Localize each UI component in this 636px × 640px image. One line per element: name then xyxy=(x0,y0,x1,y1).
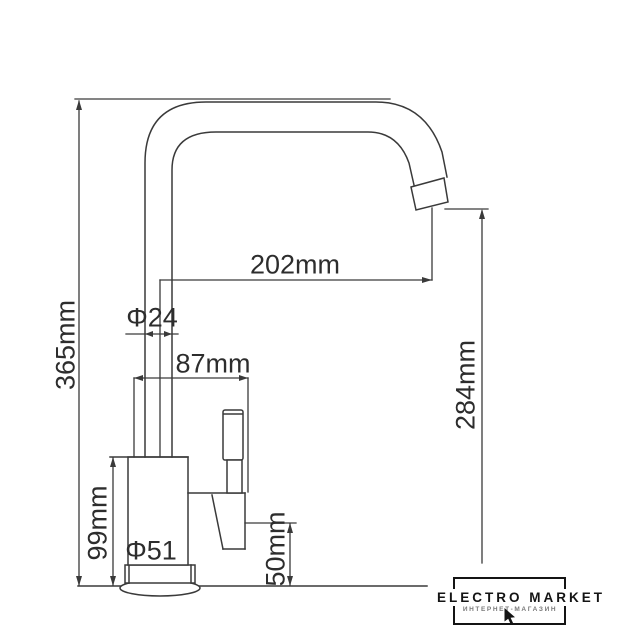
logo-brand-text: ELECTRO MARKET xyxy=(437,589,583,606)
dim-label-outlet-height: 284mm xyxy=(453,340,480,430)
dim-label-spout-reach: 202mm xyxy=(250,252,340,279)
dim-label-spout-diameter: Φ24 xyxy=(126,305,178,332)
spout-aerator xyxy=(411,178,448,210)
electro-market-logo: ELECTRO MARKET ИНТЕРНЕТ-МАГАЗИН xyxy=(437,576,583,628)
dim-label-body-width: 87mm xyxy=(175,351,250,378)
dim-label-base-diameter: Φ51 xyxy=(125,538,177,565)
faucet-base-flange xyxy=(125,565,195,583)
dim-label-valve-height: 50mm xyxy=(263,511,290,586)
dim-label-total-height: 365mm xyxy=(53,300,80,390)
dim-label-body-height: 99mm xyxy=(85,485,112,560)
faucet-handle xyxy=(223,410,243,493)
cursor-icon xyxy=(503,608,517,625)
faucet-dimension-diagram: 365mm 99mm Φ24 87mm 202mm 284mm 50mm Φ51… xyxy=(0,0,636,640)
